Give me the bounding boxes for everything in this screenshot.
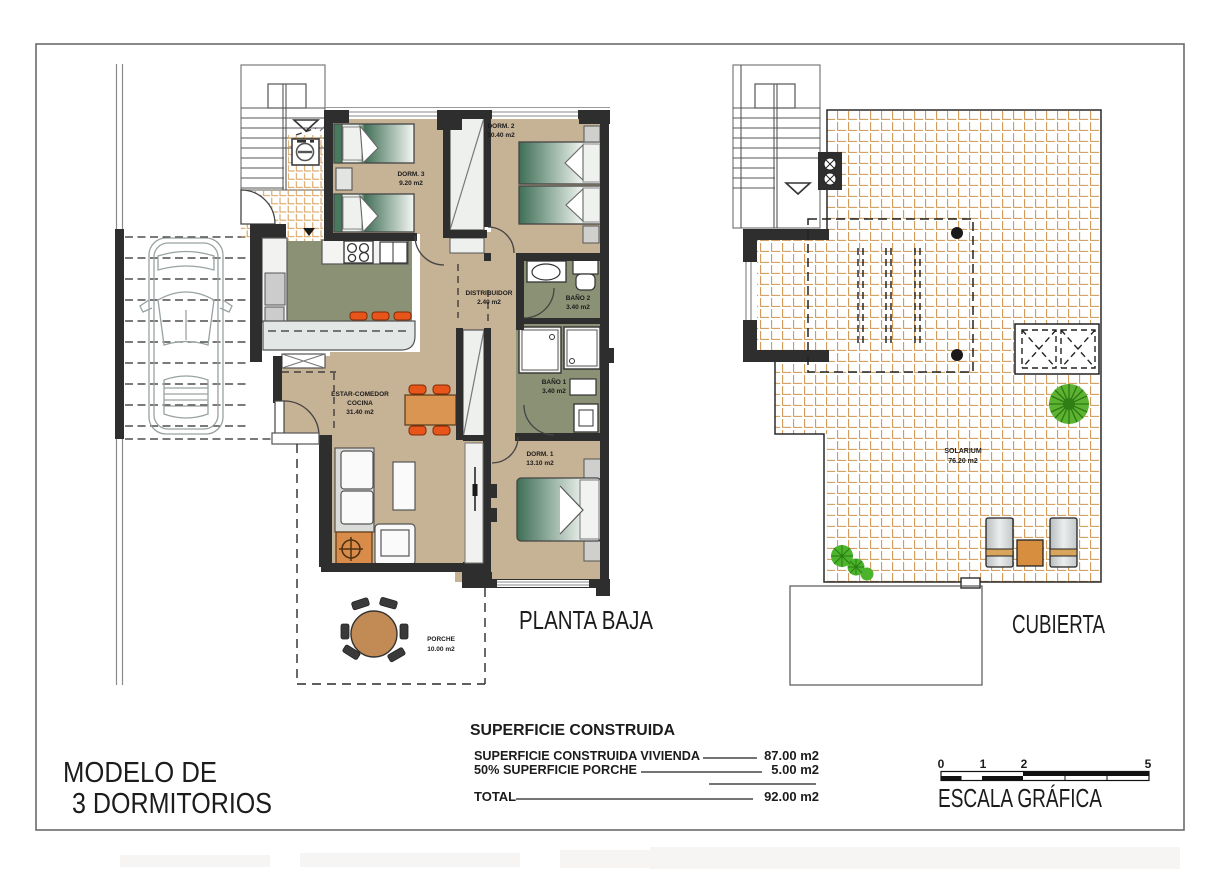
svg-text:SOLARIUM: SOLARIUM bbox=[944, 448, 982, 455]
svg-text:10.40 m2: 10.40 m2 bbox=[487, 132, 515, 139]
svg-text:87.00 m2: 87.00 m2 bbox=[764, 748, 819, 763]
svg-text:3.40 m2: 3.40 m2 bbox=[542, 388, 566, 395]
svg-text:SUPERFICIE CONSTRUIDA: SUPERFICIE CONSTRUIDA bbox=[470, 722, 675, 739]
svg-text:50% SUPERFICIE PORCHE: 50% SUPERFICIE PORCHE bbox=[474, 762, 637, 777]
svg-text:1: 1 bbox=[980, 757, 987, 771]
svg-text:BAÑO 1: BAÑO 1 bbox=[542, 377, 567, 386]
svg-text:3 DORMITORIOS: 3 DORMITORIOS bbox=[72, 788, 272, 820]
svg-text:BAÑO 2: BAÑO 2 bbox=[566, 293, 591, 302]
svg-text:PORCHE: PORCHE bbox=[427, 636, 455, 643]
svg-text:92.00 m2: 92.00 m2 bbox=[764, 789, 819, 804]
svg-text:2.40 m2: 2.40 m2 bbox=[477, 299, 501, 306]
svg-text:3.40 m2: 3.40 m2 bbox=[566, 304, 590, 311]
svg-text:5: 5 bbox=[1145, 757, 1152, 771]
svg-text:ESTAR-COMEDOR: ESTAR-COMEDOR bbox=[331, 391, 389, 398]
svg-text:0: 0 bbox=[938, 757, 945, 771]
svg-text:PLANTA BAJA: PLANTA BAJA bbox=[519, 605, 654, 635]
svg-text:SUPERFICIE CONSTRUIDA VIVIENDA: SUPERFICIE CONSTRUIDA VIVIENDA bbox=[474, 748, 701, 763]
svg-text:DISTRIBUIDOR: DISTRIBUIDOR bbox=[466, 290, 513, 297]
svg-text:9.20 m2: 9.20 m2 bbox=[399, 180, 423, 187]
svg-text:DORM. 2: DORM. 2 bbox=[487, 123, 514, 130]
svg-text:MODELO DE: MODELO DE bbox=[63, 757, 217, 789]
svg-text:13.10 m2: 13.10 m2 bbox=[526, 460, 554, 467]
svg-text:CUBIERTA: CUBIERTA bbox=[1012, 609, 1105, 639]
svg-text:76.20 m2: 76.20 m2 bbox=[948, 458, 978, 465]
svg-text:COCINA: COCINA bbox=[347, 400, 373, 407]
svg-text:2: 2 bbox=[1021, 757, 1028, 771]
svg-text:TOTAL: TOTAL bbox=[474, 789, 516, 804]
svg-text:31.40 m2: 31.40 m2 bbox=[346, 409, 374, 416]
svg-text:10.00 m2: 10.00 m2 bbox=[427, 646, 455, 653]
svg-text:DORM. 1: DORM. 1 bbox=[526, 451, 553, 458]
svg-text:ESCALA GRÁFICA: ESCALA GRÁFICA bbox=[938, 783, 1102, 813]
svg-text:DORM. 3: DORM. 3 bbox=[397, 171, 424, 178]
svg-text:5.00 m2: 5.00 m2 bbox=[771, 762, 819, 777]
